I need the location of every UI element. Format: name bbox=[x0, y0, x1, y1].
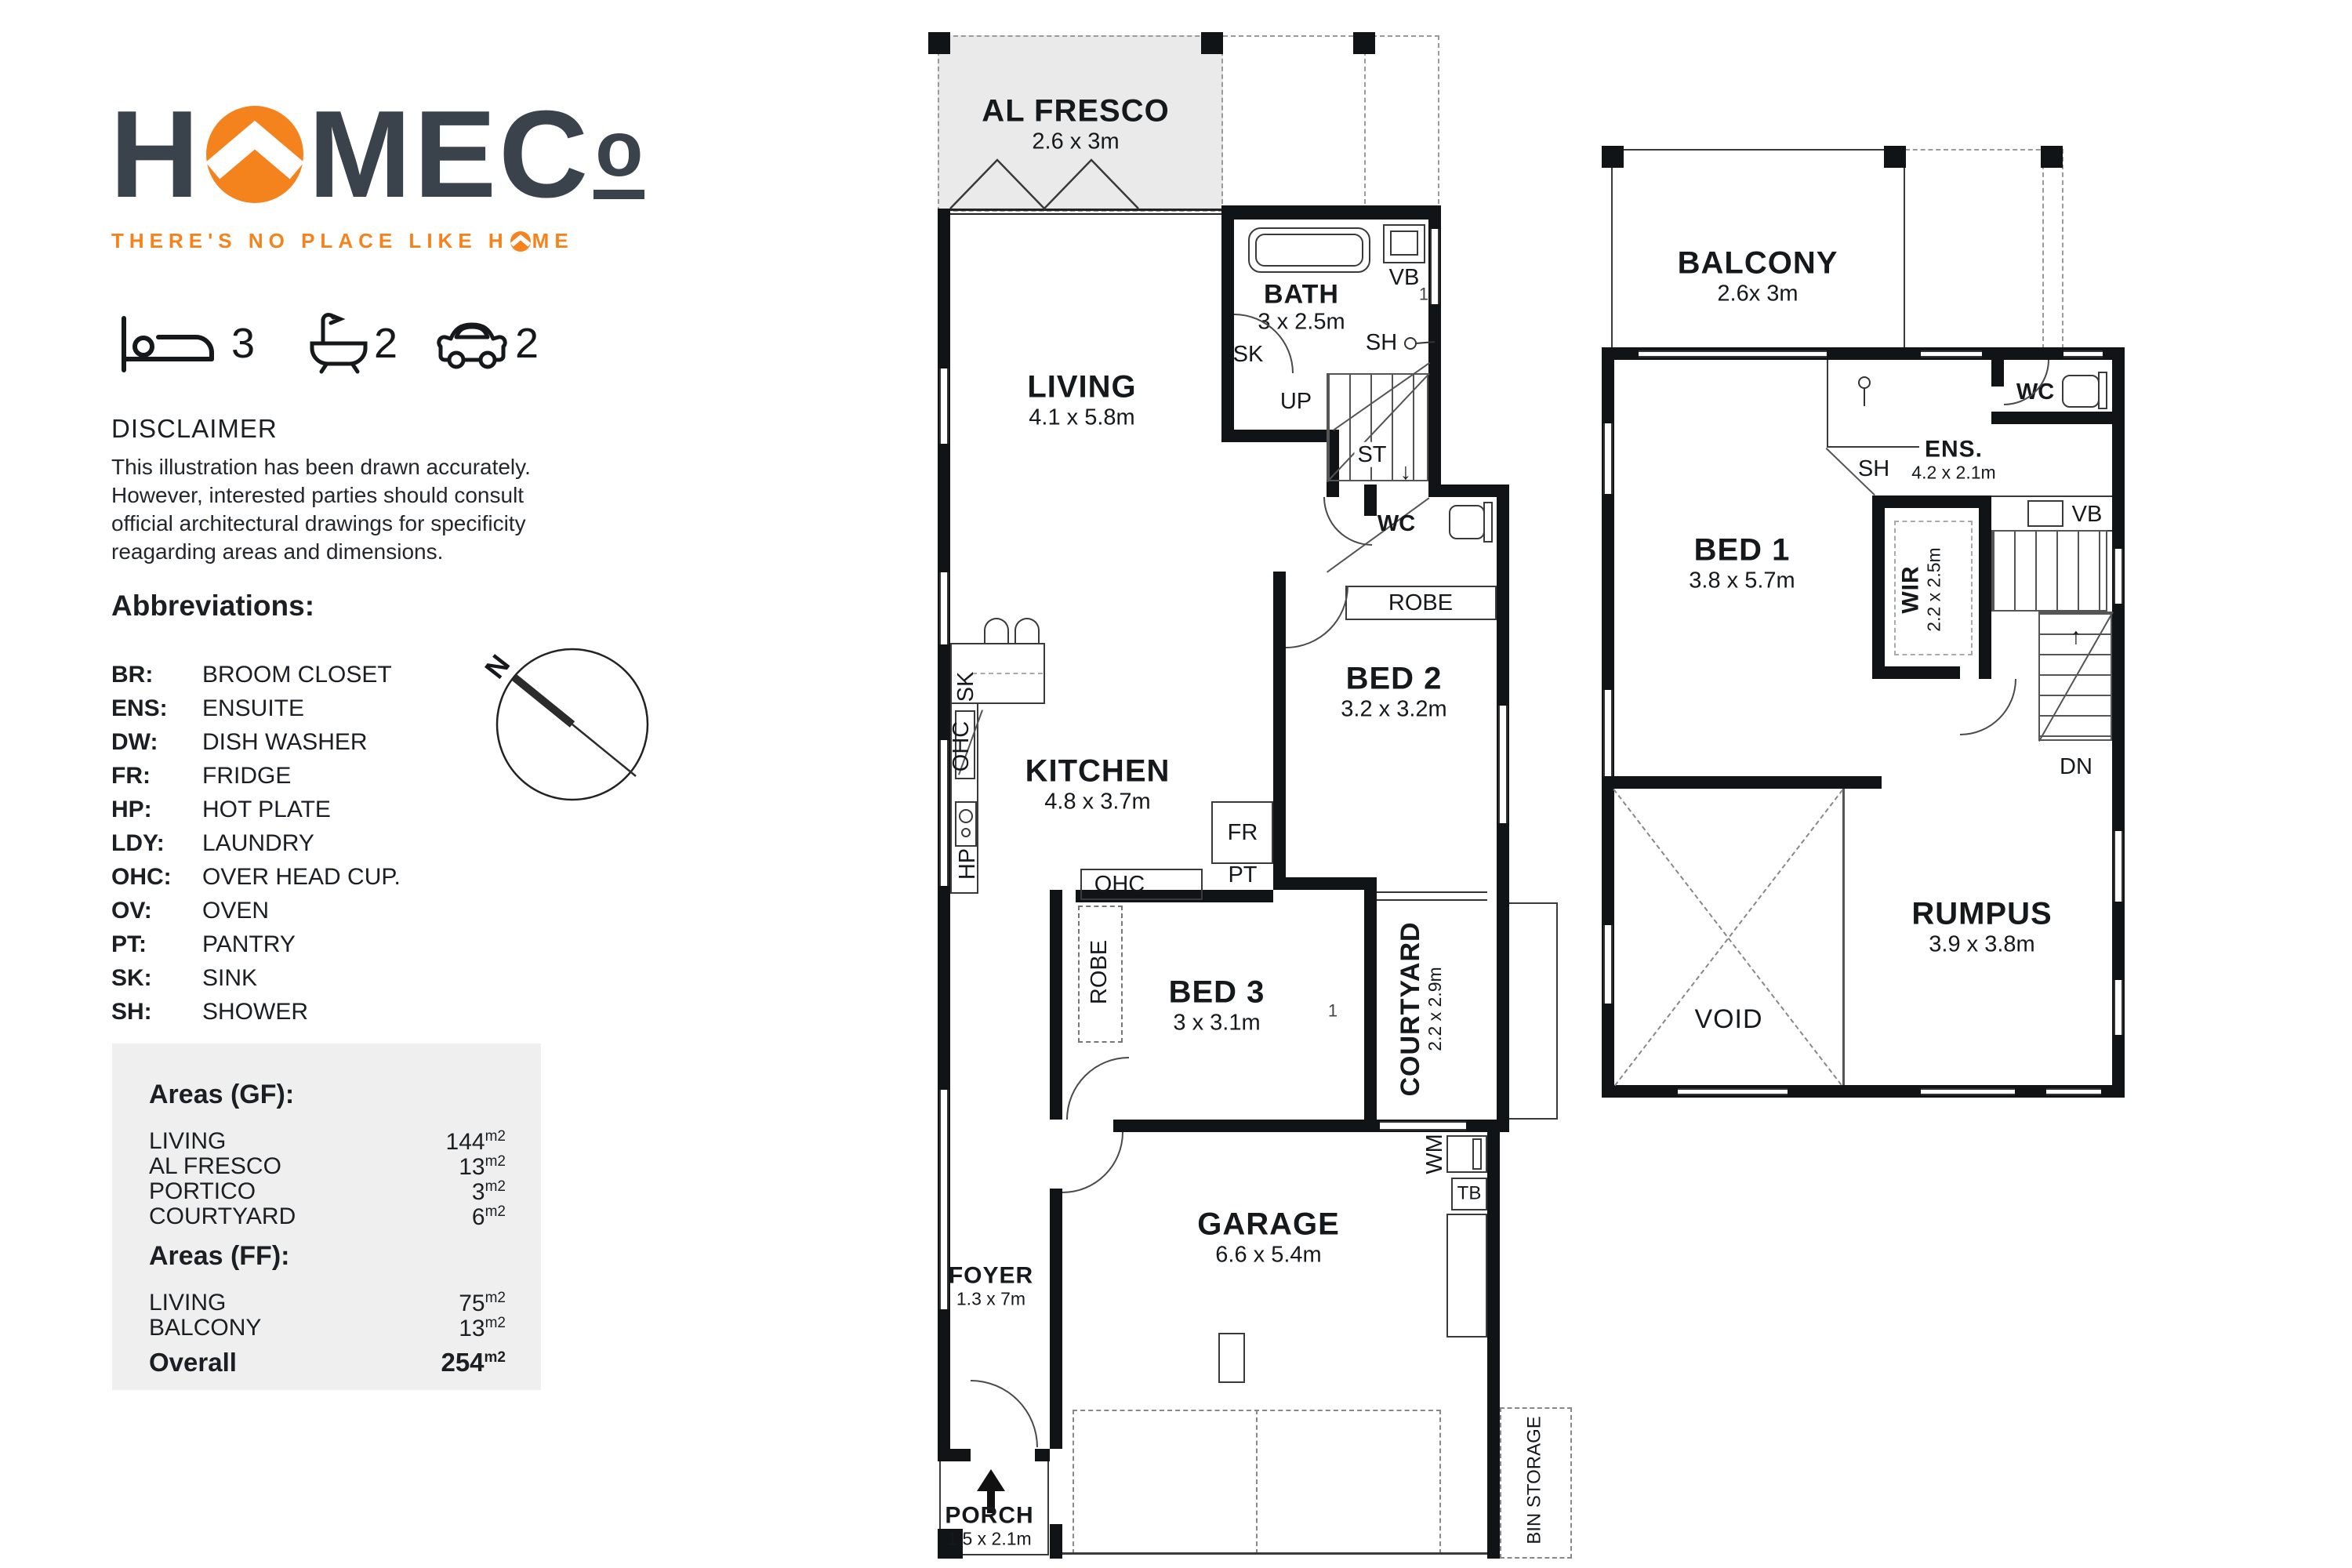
wall bbox=[1875, 495, 1991, 508]
label-dn: DN bbox=[2060, 754, 2092, 779]
shower-screen-line bbox=[1827, 360, 1828, 448]
wir-hall-door-arc bbox=[1960, 679, 2016, 735]
toilet bbox=[2062, 375, 2100, 408]
wall bbox=[1991, 360, 2004, 387]
post bbox=[1884, 146, 1906, 168]
window bbox=[1603, 925, 1613, 1004]
first-floor-plan: BALCONY2.6x 3m BED 13.8 x 5.7m SH WC ENS… bbox=[0, 0, 2352, 1568]
wall bbox=[1979, 495, 1991, 679]
window bbox=[1921, 1088, 2015, 1095]
wall bbox=[1872, 495, 1885, 679]
window bbox=[1603, 690, 1613, 776]
balcony-door bbox=[1639, 350, 1827, 358]
post bbox=[2041, 146, 2063, 168]
window bbox=[2046, 1088, 2101, 1095]
room-label-bed1: BED 13.8 x 5.7m bbox=[1689, 532, 1795, 593]
stair-up-arrow-ff: ↑ bbox=[2071, 624, 2082, 649]
room-label-void: VOID bbox=[1690, 1004, 1767, 1034]
vanity-shelf-line bbox=[1991, 495, 2112, 497]
window bbox=[1921, 350, 1982, 358]
void-rumpus-divider bbox=[1842, 789, 1845, 1085]
balcony-roof-bay bbox=[1905, 149, 2063, 349]
room-label-ens: ENS.4.2 x 2.1m bbox=[1911, 436, 1995, 482]
window bbox=[2063, 350, 2103, 358]
window bbox=[1678, 1088, 1788, 1095]
toilet-cistern bbox=[2098, 372, 2107, 409]
shower-screen-line bbox=[1827, 446, 1919, 448]
wall bbox=[1991, 412, 2125, 424]
window bbox=[1603, 423, 1613, 494]
room-label-balcony: BALCONY2.6x 3m bbox=[1678, 245, 1838, 306]
label-sh-ff: SH bbox=[1858, 456, 1889, 481]
vanity-basin-ff bbox=[2027, 500, 2063, 527]
window bbox=[2114, 831, 2123, 902]
room-label-rumpus: RUMPUS3.9 x 3.8m bbox=[1911, 896, 2052, 956]
wall bbox=[1872, 666, 1960, 679]
post bbox=[1602, 146, 1624, 168]
shower-head-icon bbox=[1857, 375, 1872, 409]
stairs-winder bbox=[1991, 530, 2107, 612]
window bbox=[2114, 980, 2123, 1035]
room-label-wir: WIR2.2 x 2.5m bbox=[1897, 547, 1944, 631]
roof-bay-line bbox=[2042, 149, 2044, 349]
label-vb-ff: VB bbox=[2072, 502, 2103, 527]
window bbox=[2114, 549, 2123, 604]
wall bbox=[1614, 776, 1882, 789]
